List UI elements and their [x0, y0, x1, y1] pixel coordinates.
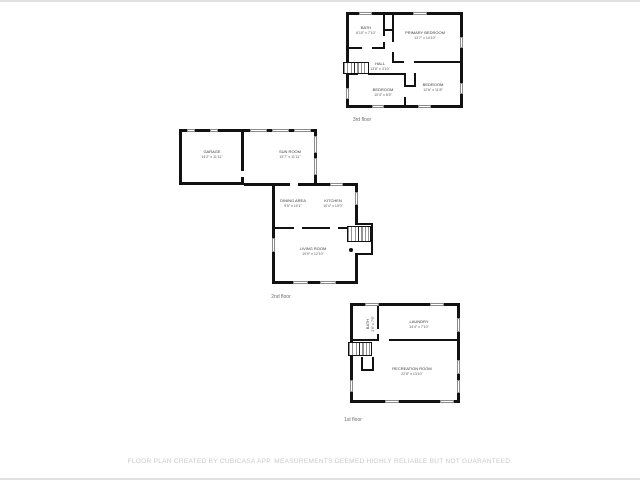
wall — [298, 183, 358, 186]
room-label-bedroom-right: BEDROOM 12'6" x 11'8" — [423, 82, 444, 94]
window — [210, 129, 218, 132]
room-dims: 13'7" x 14'10" — [405, 36, 445, 42]
wall — [302, 227, 330, 229]
room-dims: 6'10" x 7'10" — [356, 31, 376, 37]
window — [359, 12, 372, 15]
window — [460, 83, 463, 94]
wall — [346, 105, 463, 108]
floor-plan-2nd: GARAGE 14'2" x 11'11" SUN ROOM 15'7" x 1… — [175, 127, 380, 292]
window — [294, 129, 311, 132]
wall — [272, 281, 358, 284]
room-dims: 10'4" x 8'5" — [373, 93, 394, 99]
floor-label-2nd: 2nd floor — [271, 294, 290, 300]
wall — [392, 12, 394, 42]
wall — [404, 73, 406, 85]
window — [272, 238, 275, 252]
room-label-recreation-room: RECREATION ROOM 22'8" x 13'10" — [392, 366, 431, 378]
window — [372, 105, 384, 108]
door-marker — [349, 248, 353, 252]
stairs — [343, 62, 369, 74]
wall — [348, 47, 362, 49]
window — [330, 183, 343, 186]
window — [413, 12, 427, 15]
wall — [371, 223, 373, 255]
wall — [244, 183, 290, 186]
room-dims: 10'4" x 10'0" — [323, 204, 343, 210]
window — [385, 400, 399, 403]
wall — [179, 182, 244, 185]
wall — [241, 129, 244, 171]
window — [320, 281, 336, 284]
room-label-bath: BATH 6'10" x 7'10" — [356, 25, 376, 37]
window — [460, 37, 463, 48]
room-dims: 13'8" x 3'10" — [370, 67, 390, 73]
wall — [414, 61, 460, 63]
room-dims: 12'6" x 11'8" — [423, 88, 444, 94]
wall — [404, 85, 416, 87]
wall — [361, 369, 374, 371]
window — [346, 88, 349, 99]
floor-plan-page: BATH 6'10" x 7'10" PRIMARY BEDROOM 13'7"… — [0, 0, 640, 480]
wall — [355, 253, 358, 284]
room-dims: 9'5" x 10'1" — [280, 204, 306, 210]
disclaimer-text: FLOOR PLAN CREATED BY CUBICASA APP. MEAS… — [128, 458, 513, 465]
floor-label-1st: 1st floor — [344, 417, 362, 423]
window — [187, 129, 195, 132]
wall — [389, 339, 460, 341]
floor-plan-1st: BATH 3'6" x 7'6" LAUNDRY 14'4" x 7'10" R… — [348, 302, 464, 407]
window — [430, 303, 444, 306]
window — [457, 360, 460, 374]
wall — [272, 227, 294, 229]
wall — [350, 339, 379, 341]
room-label-dining-area: DINING AREA 9'5" x 10'1" — [280, 198, 306, 210]
room-label-primary-bedroom: PRIMARY BEDROOM 13'7" x 14'10" — [405, 30, 445, 42]
wall — [372, 47, 385, 49]
room-dims: 3'6" x 7'6" — [371, 316, 377, 332]
floor-plan-3rd: BATH 6'10" x 7'10" PRIMARY BEDROOM 13'7"… — [345, 12, 470, 112]
room-label-garage: GARAGE 14'2" x 11'11" — [201, 149, 222, 161]
window — [293, 281, 308, 284]
room-label-bedroom-left: BEDROOM 10'4" x 8'5" — [373, 87, 394, 99]
wall — [404, 97, 406, 105]
room-label-bath: BATH 3'6" x 7'6" — [365, 316, 377, 332]
window — [314, 158, 317, 175]
window — [418, 105, 431, 108]
wall — [272, 183, 275, 284]
room-dims: 22'8" x 13'10" — [392, 372, 431, 378]
stairs — [347, 226, 371, 242]
window — [350, 380, 353, 392]
window — [457, 380, 460, 393]
window — [250, 129, 267, 132]
wall — [383, 12, 385, 36]
wall — [368, 73, 406, 75]
wall — [179, 129, 182, 185]
window — [355, 192, 358, 205]
room-label-laundry: LAUNDRY 14'4" x 7'10" — [409, 319, 429, 331]
window — [440, 400, 454, 403]
room-label-sun-room: SUN ROOM 15'7" x 11'11" — [279, 149, 301, 161]
window — [314, 136, 317, 153]
room-label-living-room: LIVING ROOM 19'9" x 12'10" — [300, 246, 327, 258]
room-label-kitchen: KITCHEN 10'4" x 10'0" — [323, 198, 343, 210]
room-dims: 14'4" x 7'10" — [409, 325, 429, 331]
page-edge-top — [0, 0, 640, 2]
wall — [394, 61, 404, 63]
stairs — [348, 342, 372, 356]
room-dims: 19'9" x 12'10" — [300, 252, 327, 258]
window — [457, 318, 460, 332]
window — [272, 129, 289, 132]
room-label-hall: HALL 13'8" x 3'10" — [370, 61, 390, 73]
room-dims: 15'7" x 11'11" — [279, 155, 301, 161]
wall — [358, 253, 373, 255]
floor-label-3rd: 3rd floor — [353, 117, 371, 123]
room-dims: 14'2" x 11'11" — [201, 155, 222, 161]
wall — [377, 303, 379, 329]
window — [365, 303, 379, 306]
